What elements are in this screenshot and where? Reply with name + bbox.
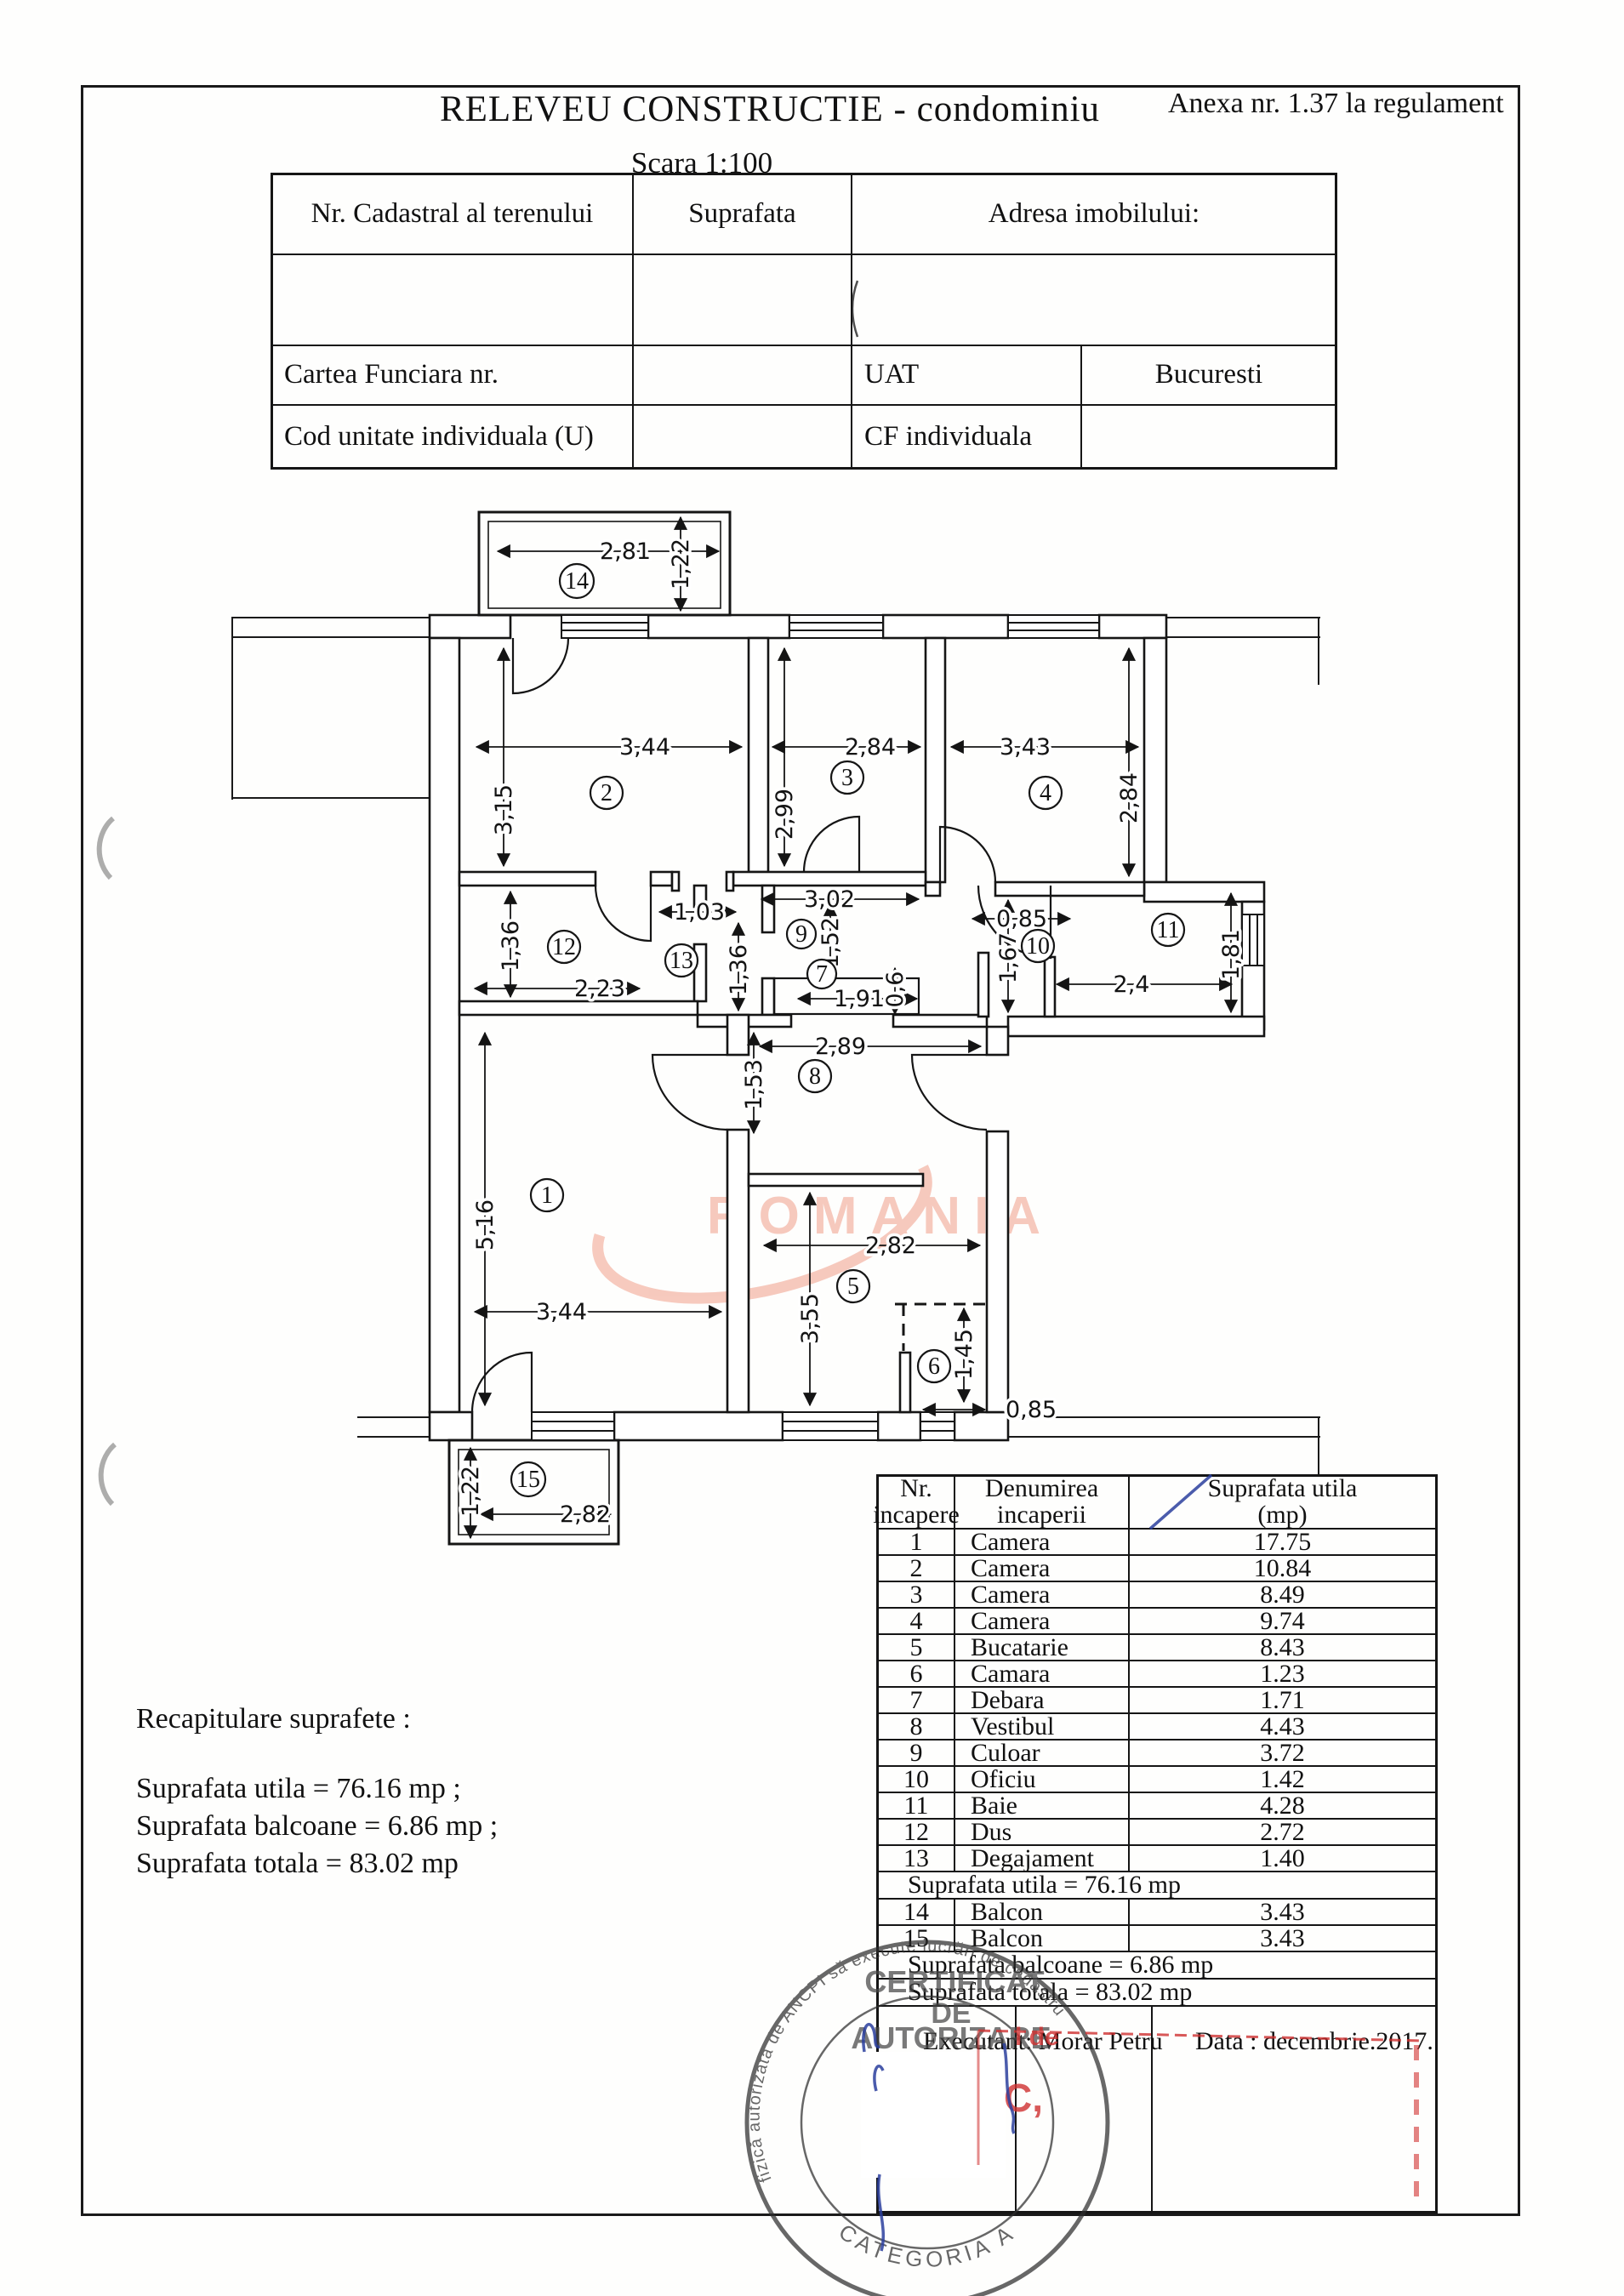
table-row: 12Dus2.72 [879,1818,1435,1844]
table-row: 10Oficiu1.42 [879,1765,1435,1792]
info-value-cod-unitate [632,404,852,470]
recap-line: Suprafata totala = 83.02 mp [136,1848,681,1880]
info-label-cod-unitate: Cod unitate individuala (U) [271,404,634,470]
info-label-cartea-funciara: Cartea Funciara nr. [271,345,634,406]
table-row: 6Camara1.23 [879,1660,1435,1686]
info-header-adresa: Adresa imobilului: [851,173,1337,255]
date-text: Data : decembrie.2017. [1195,2027,1433,2056]
table-row: 4Camera9.74 [879,1607,1435,1633]
table-row: 13Degajament1.40 [879,1844,1435,1871]
table-row: 11Baie4.28 [879,1792,1435,1818]
sum-utila-row: Suprafata utila = 76.16 mp [879,1871,1435,1898]
header-suprafata-utila: Suprafata utila (mp) [1130,1477,1435,1528]
info-value-cf-individuala [1080,404,1337,470]
header-nr-incapere: Nr. incapere [879,1477,955,1528]
executant-text: Executant: Morar Petru [923,2027,1163,2056]
info-value-nr-cadastral [271,254,634,346]
info-label-cf-individuala: CF individuala [851,404,1082,470]
table-row: 9Culoar3.72 [879,1739,1435,1765]
recap-line: Suprafata balcoane = 6.86 mp ; [136,1810,681,1843]
scanned-document-page: ROMANIA [0,0,1624,2296]
room-areas-table: Nr. incapere Denumirea incaperii Suprafa… [876,1474,1438,2213]
table-row: 15Balcon3.43 [879,1924,1435,1951]
recap-line: Suprafata utila = 76.16 mp ; [136,1773,681,1805]
table-row: 1Camera17.75 [879,1528,1435,1554]
sum-totala-row: Suprafata totala = 83.02 mp [879,1978,1435,2005]
annex-note: Anexa nr. 1.37 la regulament [1168,88,1519,120]
info-value-adresa [851,254,1337,346]
info-value-city: Bucuresti [1080,345,1337,406]
info-value-cartea-funciara [632,345,852,406]
table-row: 8Vestibul4.43 [879,1712,1435,1739]
table-row: 14Balcon3.43 [879,1898,1435,1924]
info-label-uat: UAT [851,345,1082,406]
table-row: 5Bucatarie8.43 [879,1633,1435,1660]
page-title: RELEVEU CONSTRUCTIE - condominiu [259,88,1280,130]
table-row: 2Camera10.84 [879,1554,1435,1581]
recap-block: Recapitulare suprafete : Suprafata utila… [136,1703,681,1885]
table-header-row: Nr. incapere Denumirea incaperii Suprafa… [879,1477,1435,1528]
info-header-suprafata: Suprafata [632,173,852,255]
svg-text:CATEGORIA A: CATEGORIA A [835,2219,1021,2272]
info-header-nr-cadastral: Nr. Cadastral al terenului [271,173,634,255]
info-value-suprafata [632,254,852,346]
table-row: 7Debara1.71 [879,1686,1435,1712]
recap-title: Recapitulare suprafete : [136,1703,681,1735]
sum-balcoane-row: Suprafata balcoane = 6.86 mp [879,1951,1435,1978]
header-denumirea: Denumirea incaperii [955,1477,1130,1528]
executant-row: Executant: Morar Petru Data : decembrie.… [879,2005,1435,2211]
stamp-bottom-text: CATEGORIA A [835,2219,1021,2272]
table-row: 3Camera8.49 [879,1581,1435,1607]
